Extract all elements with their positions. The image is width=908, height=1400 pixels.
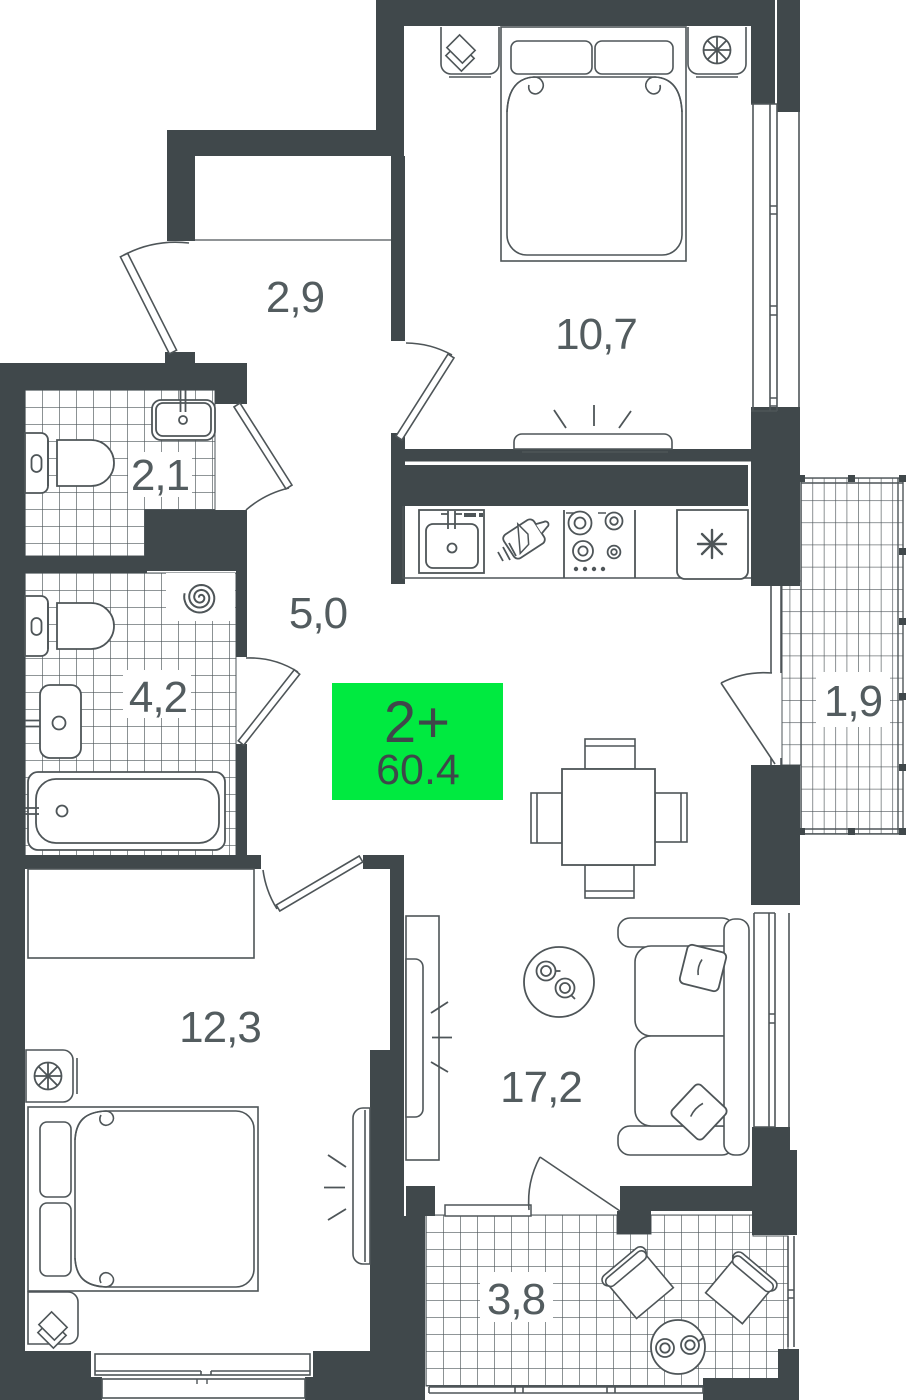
svg-text:5,0: 5,0 — [289, 589, 347, 638]
svg-text:2,9: 2,9 — [266, 273, 324, 322]
svg-text:10,7: 10,7 — [555, 310, 637, 359]
svg-text:12,3: 12,3 — [179, 1003, 261, 1052]
svg-text:60.4: 60.4 — [376, 746, 460, 794]
svg-text:4,2: 4,2 — [129, 673, 187, 722]
svg-text:17,2: 17,2 — [500, 1063, 582, 1112]
svg-text:1,9: 1,9 — [824, 677, 882, 726]
svg-text:3,8: 3,8 — [487, 1275, 545, 1324]
svg-text:2,1: 2,1 — [131, 451, 189, 500]
